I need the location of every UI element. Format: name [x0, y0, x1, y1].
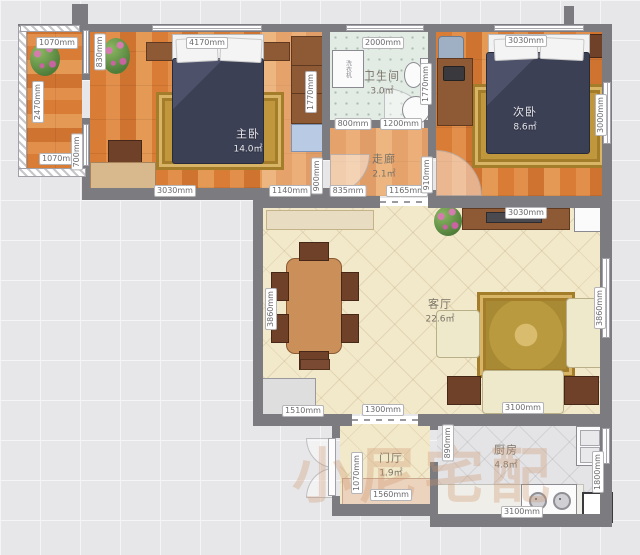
- room-name: 客厅: [425, 296, 454, 312]
- window: [83, 124, 89, 166]
- dim-label: 1070mm: [36, 37, 78, 49]
- dim-label: 2000mm: [362, 37, 404, 49]
- nightstand-right: [262, 42, 290, 61]
- wall-tv-icon: [300, 359, 330, 370]
- dim-label: 700mm: [71, 134, 83, 171]
- sink-basin: [580, 430, 600, 446]
- window: [83, 30, 89, 74]
- room-area: 22.6㎡: [425, 312, 454, 325]
- wall-stub: [72, 4, 88, 26]
- dim-label: 2470mm: [32, 81, 44, 123]
- plant-icon: [434, 206, 462, 236]
- dining-chair: [341, 272, 359, 301]
- dim-label: 3860mm: [265, 288, 277, 330]
- dim-label: 3860mm: [594, 287, 606, 329]
- room-label-bathroom: 卫生间 3.0㎡: [364, 68, 400, 97]
- plant-icon: [102, 38, 130, 74]
- dim-label: 4170mm: [186, 37, 228, 49]
- window: [346, 25, 424, 31]
- laptop-icon: [443, 66, 465, 81]
- room-label-second: 次卧 8.6㎡: [513, 104, 537, 133]
- dim-label: 1800mm: [592, 451, 604, 493]
- dim-label: 3030mm: [505, 35, 547, 47]
- living-rug: [477, 292, 575, 378]
- washing-machine-label: 洗衣机: [344, 60, 353, 78]
- dim-label: 3000mm: [595, 94, 607, 136]
- window: [152, 25, 262, 31]
- dim-label: 1510mm: [282, 405, 324, 417]
- dim-label: 800mm: [335, 118, 372, 130]
- sideboard: [266, 210, 374, 230]
- room-area: 2.1㎡: [372, 167, 396, 180]
- dining-table: [286, 258, 342, 354]
- dim-label: 835mm: [330, 185, 367, 197]
- wall: [255, 196, 380, 208]
- dim-label: 3100mm: [502, 402, 544, 414]
- floor-plan: 洗衣机: [0, 0, 640, 555]
- room-area: 8.6㎡: [513, 120, 537, 133]
- master-dresser: [90, 162, 156, 190]
- room-label-master: 主卧 14.0㎡: [233, 126, 262, 155]
- wall-stub: [564, 6, 574, 26]
- balcony-window: [20, 25, 80, 32]
- watermark: 小尼宅配: [292, 428, 556, 515]
- room-name: 主卧: [233, 126, 262, 142]
- dim-label: 3100mm: [501, 506, 543, 518]
- dim-label: 890mm: [442, 425, 454, 462]
- room-name: 卫生间: [364, 68, 400, 84]
- wardrobe-shelf-line: [292, 65, 324, 66]
- room-name: 次卧: [513, 104, 537, 120]
- side-table: [564, 376, 599, 405]
- dim-label: 1300mm: [362, 404, 404, 416]
- dim-label: 3030mm: [154, 185, 196, 197]
- dining-chair: [341, 314, 359, 343]
- dim-label: 1070mm: [351, 452, 363, 494]
- washing-machine: 洗衣机: [332, 50, 364, 88]
- dining-chair: [299, 242, 329, 261]
- dim-label: 3030mm: [505, 207, 547, 219]
- master-cabinet-blue: [291, 124, 325, 152]
- dim-label: 1770mm: [305, 71, 317, 113]
- dim-label: 1560mm: [370, 489, 412, 501]
- living-hall-opening: [352, 416, 418, 424]
- room-label-corridor: 走廊 2.1㎡: [372, 151, 396, 180]
- window: [494, 25, 584, 31]
- balcony-window: [18, 26, 27, 176]
- room-name: 走廊: [372, 151, 396, 167]
- room-area: 14.0㎡: [233, 142, 262, 155]
- wall: [253, 196, 263, 424]
- dim-label: 1770mm: [420, 63, 432, 105]
- second-bed-duvet: [486, 52, 590, 154]
- wall: [322, 24, 330, 160]
- dim-label: 830mm: [94, 34, 106, 71]
- room-area: 3.0㎡: [364, 84, 400, 97]
- dim-label: 910mm: [421, 157, 433, 194]
- side-table: [447, 376, 481, 405]
- dim-label: 1200mm: [380, 118, 422, 130]
- room-label-living: 客厅 22.6㎡: [425, 296, 454, 325]
- nightstand-left: [146, 42, 174, 61]
- corridor-living-opening: [380, 198, 428, 206]
- dim-label: 1140mm: [269, 185, 311, 197]
- dim-label: 900mm: [311, 158, 323, 195]
